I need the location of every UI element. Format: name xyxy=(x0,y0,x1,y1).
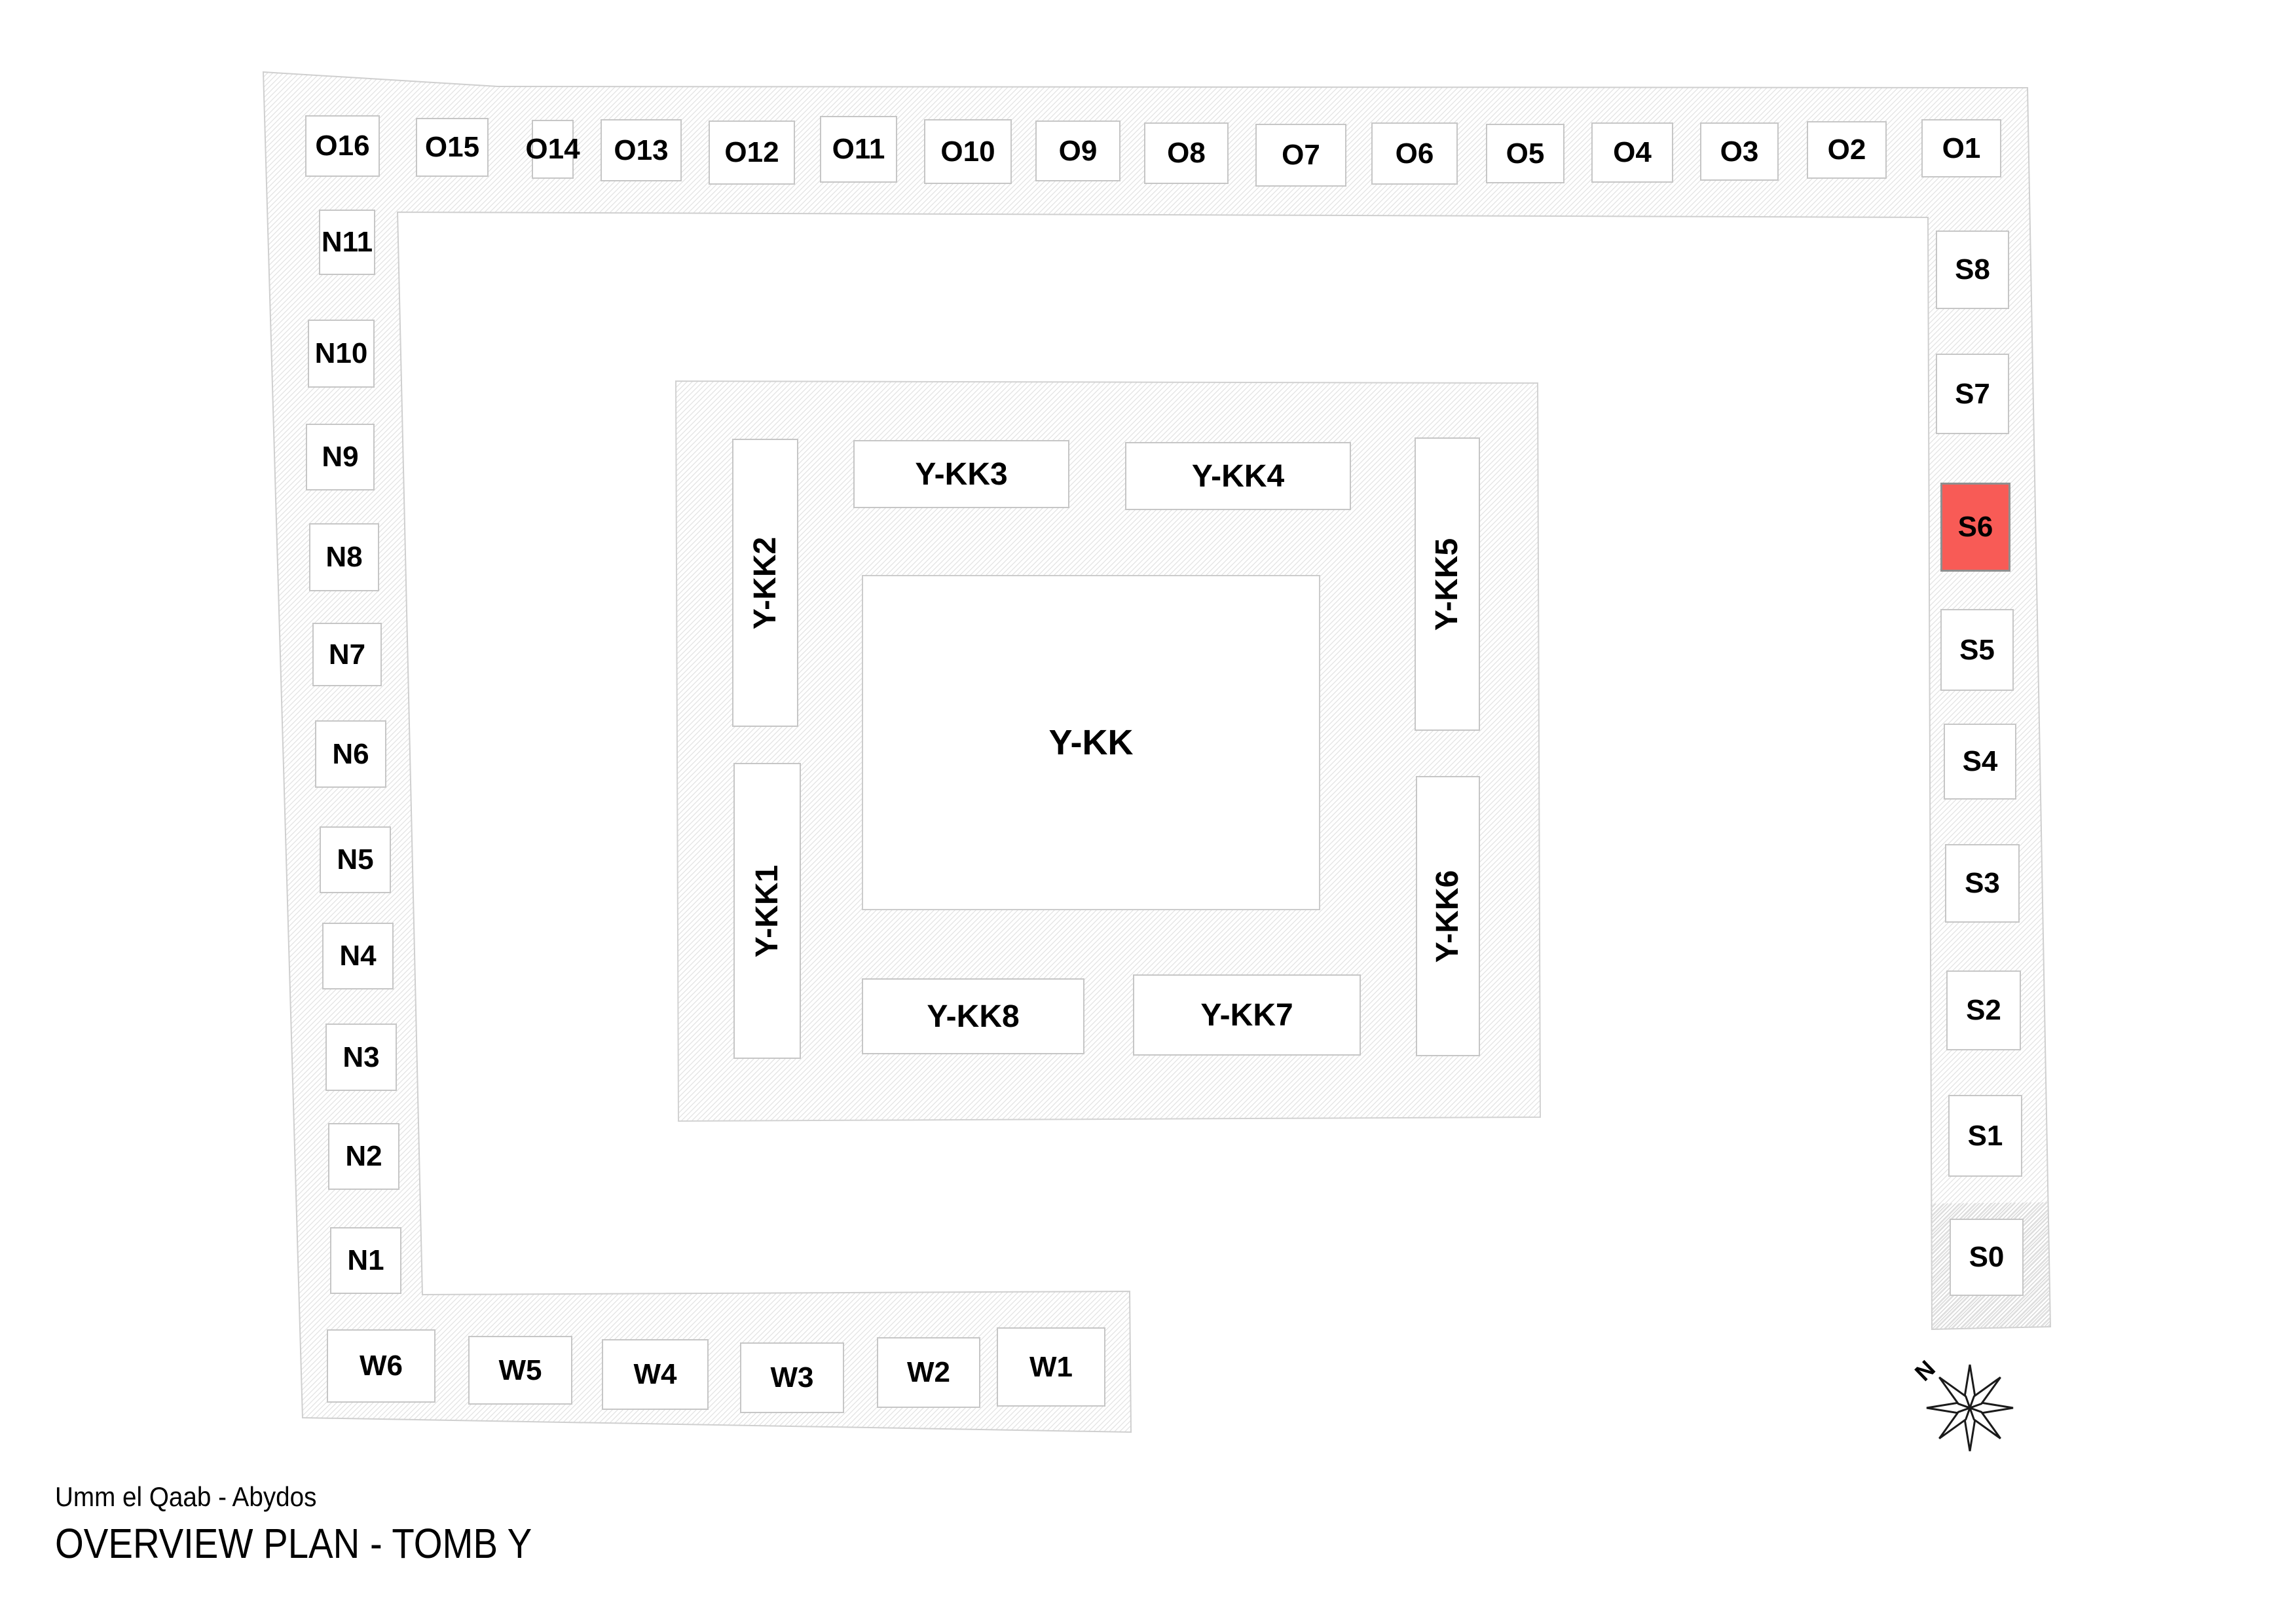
chamber-N11[interactable]: N11 xyxy=(319,210,375,275)
chamber-N1[interactable]: N1 xyxy=(330,1227,401,1294)
chamber-label: S8 xyxy=(1955,253,1990,286)
chamber-S2[interactable]: S2 xyxy=(1946,970,2021,1050)
chamber-label: N7 xyxy=(329,638,365,671)
chamber-label: W4 xyxy=(634,1358,677,1391)
compass-north-label: N xyxy=(1910,1355,1940,1386)
chamber-Y-KK[interactable]: Y-KK xyxy=(862,575,1320,910)
chamber-label: N10 xyxy=(315,337,368,370)
compass-rose xyxy=(1927,1365,2013,1451)
chamber-Y-KK1[interactable]: Y-KK1 xyxy=(733,763,801,1059)
chamber-label: S2 xyxy=(1966,994,2001,1027)
chamber-label: N1 xyxy=(347,1244,384,1277)
chamber-label: N11 xyxy=(322,226,373,259)
chamber-label: N5 xyxy=(337,843,373,876)
chamber-label: N3 xyxy=(343,1041,379,1074)
chamber-Y-KK8[interactable]: Y-KK8 xyxy=(862,978,1084,1054)
chamber-label: O3 xyxy=(1720,136,1759,168)
chamber-W1[interactable]: W1 xyxy=(997,1327,1105,1407)
chamber-label: O14 xyxy=(525,133,580,166)
chamber-S1[interactable]: S1 xyxy=(1948,1095,2022,1177)
chamber-O13[interactable]: O13 xyxy=(601,119,682,181)
chamber-Y-KK5[interactable]: Y-KK5 xyxy=(1415,437,1480,731)
chamber-label: O8 xyxy=(1167,137,1206,170)
chamber-label: N9 xyxy=(322,441,358,473)
chamber-O12[interactable]: O12 xyxy=(709,120,795,185)
chamber-O16[interactable]: O16 xyxy=(305,115,380,177)
chamber-O14[interactable]: O14 xyxy=(532,120,574,179)
chamber-N10[interactable]: N10 xyxy=(308,320,375,388)
chamber-label: S6 xyxy=(1958,511,1993,544)
chamber-O7[interactable]: O7 xyxy=(1255,124,1346,187)
chamber-O2[interactable]: O2 xyxy=(1807,121,1887,179)
chamber-S8[interactable]: S8 xyxy=(1936,231,2009,309)
chamber-N5[interactable]: N5 xyxy=(320,826,391,893)
chamber-label: Y-KK1 xyxy=(749,864,785,957)
chamber-label: S1 xyxy=(1968,1120,2003,1153)
chamber-label: W3 xyxy=(771,1361,814,1394)
chamber-W3[interactable]: W3 xyxy=(740,1342,844,1413)
chamber-label: W5 xyxy=(499,1354,542,1387)
chamber-label: W2 xyxy=(907,1356,950,1389)
chamber-N9[interactable]: N9 xyxy=(306,424,375,490)
chamber-O6[interactable]: O6 xyxy=(1371,122,1458,185)
chamber-label: Y-KK5 xyxy=(1430,538,1466,630)
chamber-label: Y-KK8 xyxy=(927,999,1019,1035)
chamber-O4[interactable]: O4 xyxy=(1591,122,1673,183)
chamber-O15[interactable]: O15 xyxy=(416,118,489,177)
chamber-N3[interactable]: N3 xyxy=(325,1024,397,1091)
chamber-label: W6 xyxy=(360,1350,403,1382)
chamber-Y-KK6[interactable]: Y-KK6 xyxy=(1416,776,1480,1056)
chamber-S5[interactable]: S5 xyxy=(1940,609,2014,691)
chamber-label: O16 xyxy=(315,130,369,162)
chamber-label: Y-KK3 xyxy=(915,456,1007,492)
chamber-O10[interactable]: O10 xyxy=(924,119,1012,184)
chamber-label: O6 xyxy=(1396,138,1434,170)
chamber-N2[interactable]: N2 xyxy=(328,1123,399,1190)
page-title: OVERVIEW PLAN - TOMB Y xyxy=(55,1519,532,1568)
tomb-plan: N Umm el Qaab - Abydos OVERVIEW PLAN - T… xyxy=(0,0,2296,1624)
chamber-label: O4 xyxy=(1613,136,1652,169)
chamber-label: O11 xyxy=(832,133,885,166)
chamber-label: O13 xyxy=(614,134,668,167)
chamber-label: Y-KK6 xyxy=(1430,870,1466,962)
chamber-label: S3 xyxy=(1965,867,2000,900)
chamber-O11[interactable]: O11 xyxy=(820,116,897,183)
chamber-label: O9 xyxy=(1059,135,1098,168)
chamber-S4[interactable]: S4 xyxy=(1944,724,2016,800)
chamber-O8[interactable]: O8 xyxy=(1144,122,1229,184)
chamber-label: N6 xyxy=(332,738,369,771)
chamber-S6[interactable]: S6 xyxy=(1940,483,2010,572)
chamber-label: N4 xyxy=(339,940,376,972)
chamber-label: O10 xyxy=(940,136,995,168)
chamber-label: Y-KK xyxy=(1048,722,1133,763)
chamber-label: S7 xyxy=(1955,378,1990,411)
chamber-W4[interactable]: W4 xyxy=(602,1339,709,1410)
chamber-W6[interactable]: W6 xyxy=(327,1329,435,1403)
chamber-label: S5 xyxy=(1959,634,1995,667)
chamber-Y-KK7[interactable]: Y-KK7 xyxy=(1133,974,1361,1056)
chamber-O3[interactable]: O3 xyxy=(1700,122,1779,181)
chamber-N7[interactable]: N7 xyxy=(312,623,382,686)
chamber-O1[interactable]: O1 xyxy=(1921,119,2001,177)
chamber-label: Y-KK4 xyxy=(1192,458,1284,494)
chamber-label: N2 xyxy=(345,1140,382,1173)
chamber-O9[interactable]: O9 xyxy=(1035,120,1120,181)
chamber-label: Y-KK2 xyxy=(747,536,783,629)
chamber-N4[interactable]: N4 xyxy=(322,923,394,989)
chamber-label: Y-KK7 xyxy=(1200,997,1293,1033)
chamber-W2[interactable]: W2 xyxy=(877,1337,980,1408)
chamber-O5[interactable]: O5 xyxy=(1486,124,1565,183)
chamber-W5[interactable]: W5 xyxy=(468,1336,572,1405)
chamber-label: S0 xyxy=(1969,1241,2005,1274)
chamber-label: S4 xyxy=(1963,745,1998,778)
chamber-label: O2 xyxy=(1828,134,1866,166)
chamber-S0[interactable]: S0 xyxy=(1950,1219,2024,1296)
chamber-S3[interactable]: S3 xyxy=(1945,844,2020,923)
chamber-Y-KK3[interactable]: Y-KK3 xyxy=(853,440,1069,508)
title-block: Umm el Qaab - Abydos OVERVIEW PLAN - TOM… xyxy=(55,1481,597,1568)
chamber-label: W1 xyxy=(1029,1351,1073,1384)
chamber-Y-KK4[interactable]: Y-KK4 xyxy=(1125,442,1351,510)
chamber-N8[interactable]: N8 xyxy=(309,523,379,591)
chamber-Y-KK2[interactable]: Y-KK2 xyxy=(732,439,798,727)
chamber-label: O7 xyxy=(1282,139,1320,172)
chamber-S7[interactable]: S7 xyxy=(1936,354,2009,434)
chamber-label: O5 xyxy=(1506,138,1545,170)
site-label: Umm el Qaab - Abydos xyxy=(55,1481,553,1513)
chamber-N6[interactable]: N6 xyxy=(315,720,386,788)
chamber-label: O15 xyxy=(425,131,479,164)
chamber-label: O1 xyxy=(1942,132,1981,165)
chamber-label: N8 xyxy=(325,541,362,574)
chamber-label: O12 xyxy=(724,136,779,169)
